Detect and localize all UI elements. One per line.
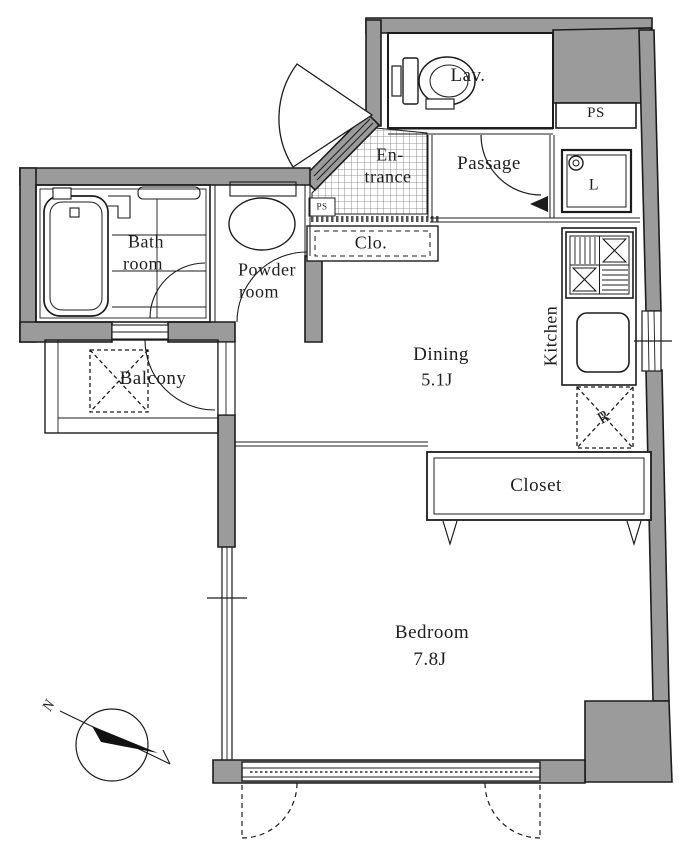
label-hall-closet: Clo. [355, 234, 388, 253]
wall-lav-left [366, 20, 381, 126]
label-bath-2: room [123, 255, 163, 274]
label-entrance-2: trance [365, 168, 412, 187]
room-divider [235, 442, 428, 446]
wall-bath-bottom-bar [168, 322, 235, 342]
label-dining: Dining [413, 345, 469, 365]
wall-corner-block [585, 701, 672, 782]
faucet-icon [569, 156, 583, 170]
label-closet: Closet [510, 476, 562, 496]
label-bedroom: Bedroom [395, 623, 469, 643]
label-powder-2: room [239, 283, 279, 302]
wall-dining-left-lower [218, 415, 235, 547]
closet-door-mark-left [443, 521, 457, 544]
compass [60, 709, 170, 781]
label-powder-1: Powder [238, 261, 296, 280]
toilet-base [426, 99, 454, 109]
wall-right-lower [646, 370, 669, 701]
powder-sink [229, 198, 295, 250]
closet-area [427, 452, 651, 544]
toilet-tank [403, 58, 418, 104]
kitchen-sink [577, 313, 629, 372]
toilet-wall-unit [392, 66, 401, 96]
label-entrance-1: En- [376, 146, 404, 165]
tub-faucet [53, 188, 71, 199]
closet-door-mark-right [627, 521, 641, 544]
wall-bath-left [20, 168, 36, 342]
label-bath-1: Bath [128, 233, 164, 252]
label-kitchen: Kitchen [542, 306, 561, 366]
wall-powder-right-post [305, 256, 322, 342]
label-bedroom-size: 7.8J [413, 650, 446, 670]
label-lav: Lav. [450, 66, 485, 86]
floorplan: Lav. PS PS En- trance Passage L Clo. Kit… [0, 0, 695, 843]
label-ps-upper: PS [587, 106, 605, 122]
label-balcony: Balcony [120, 369, 187, 389]
label-laundry: L [589, 178, 599, 195]
floorplan-drawing [0, 0, 695, 843]
label-ps-lower: PS [316, 202, 327, 211]
direction-arrow [530, 196, 548, 212]
wall-right-upper [639, 30, 661, 311]
label-dining-size: 5.1J [421, 371, 453, 390]
wall-bath-bottom-left [20, 322, 112, 342]
label-passage: Passage [457, 154, 521, 174]
